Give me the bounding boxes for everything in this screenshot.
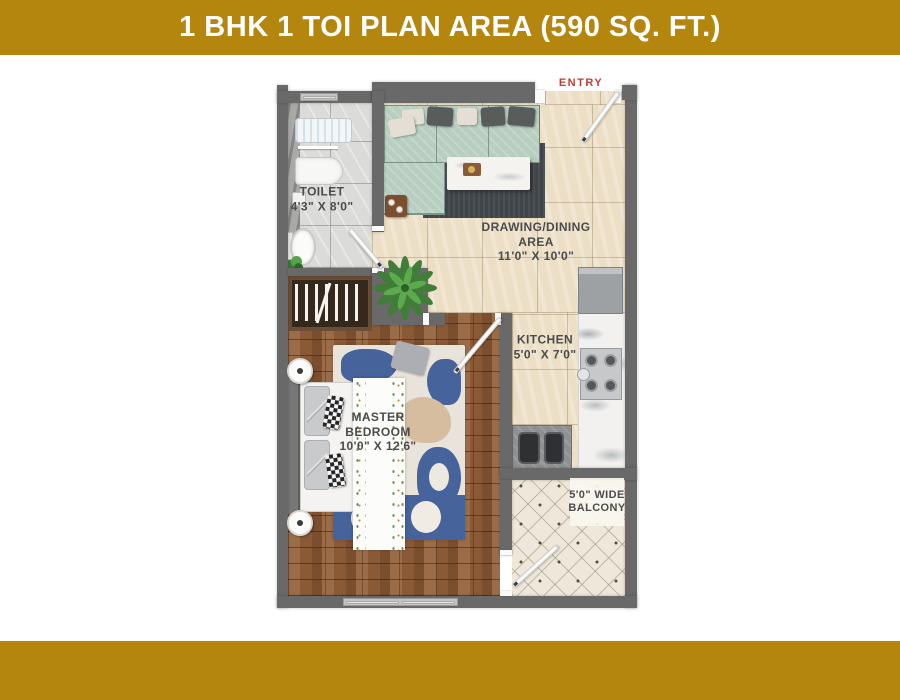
wall [625, 85, 637, 608]
room-label-master-bedroom: MASTER BEDROOM 10'0" X 12'6" [336, 410, 420, 454]
floor-plan-page: 1 BHK 1 TOI PLAN AREA (590 SQ. FT.) [0, 0, 900, 700]
door-jamb [500, 550, 512, 555]
wall [288, 268, 372, 276]
wall [277, 85, 288, 608]
serving-tray [463, 163, 481, 176]
wall [500, 313, 512, 476]
window [343, 598, 458, 606]
pot-icon [577, 368, 590, 381]
header-bar: 1 BHK 1 TOI PLAN AREA (590 SQ. FT.) [0, 0, 900, 55]
door-jamb [372, 226, 384, 231]
footer-bar [0, 641, 900, 700]
coffee-table [447, 157, 530, 190]
wall [622, 85, 637, 100]
bathtub [295, 118, 352, 143]
wall [372, 91, 384, 232]
sofa-pillow [457, 108, 477, 125]
room-label-balcony: 5'0" WIDE BALCONY [570, 478, 624, 526]
gas-stove [580, 348, 622, 400]
round-stool [287, 358, 313, 384]
vanity-sink [295, 157, 343, 185]
bed-duvet [353, 378, 405, 550]
side-table [385, 195, 407, 217]
door-jamb [500, 591, 512, 596]
fridge [578, 267, 623, 314]
room-label-drawing-dining: DRAWING/DINING AREA 11'0" X 10'0" [473, 220, 599, 264]
kitchen-sink [512, 425, 572, 470]
towel-rail [298, 146, 338, 149]
room-label-toilet: TOILET 4'3" X 8'0" [274, 184, 370, 213]
sofa-pillow [480, 106, 505, 127]
entry-label: ENTRY [559, 77, 603, 89]
wall [372, 82, 535, 103]
round-stool [287, 510, 313, 536]
door-jamb [535, 90, 545, 103]
wall [500, 480, 512, 555]
sofa-pillow [426, 106, 453, 127]
sofa-pillow [507, 106, 536, 127]
room-label-kitchen: KITCHEN 5'0" X 7'0" [514, 332, 577, 361]
window [300, 93, 338, 101]
floor-plan: ENTRY TOILET 4'3" X 8'0" DRAWING/DINING … [277, 82, 637, 608]
wardrobe [288, 276, 372, 331]
bed-headboard [287, 378, 300, 514]
wardrobe-hangers [295, 284, 365, 321]
page-title: 1 BHK 1 TOI PLAN AREA (590 SQ. FT.) [179, 11, 721, 44]
